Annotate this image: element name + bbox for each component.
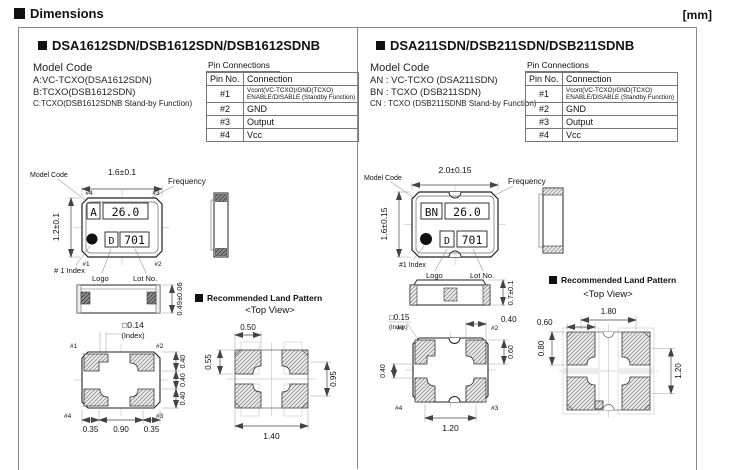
col-connection: Connection	[563, 73, 678, 86]
right-land-pattern-title: Recommended Land Pattern	[549, 275, 676, 285]
left-bottom-view-drawing: □0.14 (Index) #1 #2 #4 #3 0.40 0.40 0.40…	[30, 318, 210, 452]
pin-table-title: Pin Connections	[206, 60, 280, 72]
dim-bottom: 1.20	[442, 423, 459, 433]
col-pin-no: Pin No.	[207, 73, 244, 86]
land-pad-1	[567, 332, 595, 365]
right-panel-title: DSA211SDN/DSB211SDN/DSB211SDNB	[376, 38, 634, 53]
marking-frequency: 26.0	[453, 205, 481, 219]
dim-vertical-pitch: 1.20	[674, 363, 683, 379]
dim-bottom-2: 0.90	[113, 425, 129, 434]
model-code-line: BN : TCXO (DSB211SDN)	[370, 87, 536, 98]
model-code-line: B:TCXO(DSB1612SDN)	[33, 87, 192, 98]
dim-width: 1.6±0.1	[108, 167, 137, 177]
dim-horizontal-pitch: 1.80	[601, 307, 617, 316]
left-top-view-drawing: 1.6±0.1 1.2±0.1 Model Code Frequency #4 …	[28, 160, 263, 284]
land-pad-2	[622, 332, 650, 365]
dim-index-size: □0.15	[389, 313, 410, 322]
marking-logo: D	[444, 236, 450, 247]
dim-width: 2.0±0.15	[438, 165, 471, 175]
callout-model-code: Model Code	[364, 175, 402, 182]
center-terminal	[444, 288, 457, 301]
left-model-code: Model Code A:VC-TCXO(DSA1612SDN) B:TCXO(…	[33, 62, 192, 108]
right-bottom-view-drawing: □0.15 (Index) 0.40 #1 #2 0.40 0.60 #4 #3…	[365, 310, 530, 435]
dim-vertical-pitch: 0.95	[329, 371, 338, 387]
marking-lot-no: 701	[124, 233, 145, 247]
section-marker-icon	[38, 41, 47, 50]
land-pad-3	[622, 377, 650, 410]
pin-label-tr: #2	[156, 343, 164, 350]
side-view	[539, 188, 563, 253]
page-title-text: Dimensions	[30, 6, 104, 21]
terminal	[216, 249, 227, 256]
marking-logo: D	[108, 236, 114, 247]
dim-gap: 0.40	[380, 364, 387, 378]
terminal	[483, 285, 490, 305]
pin-label-bl: #4	[64, 413, 72, 420]
pin-label-tl: #4	[85, 190, 93, 197]
dim-pad-height: 0.80	[537, 340, 546, 356]
table-row: #2GND	[526, 103, 678, 116]
dim-right-1: 0.40	[180, 355, 187, 369]
pin-connections-table: Pin No. Connection #1 Vcont(VC-TCXO)/GND…	[206, 72, 359, 142]
page-title: Dimensions	[14, 6, 104, 21]
terminal	[543, 188, 563, 195]
dim-pad-width: 0.50	[240, 323, 256, 332]
model-code-line: AN : VC-TCXO (DSA211SDN)	[370, 75, 536, 86]
model-code-heading: Model Code	[33, 62, 192, 74]
table-row: #1 Vcont(VC-TCXO)/GND(TCXO)ENABLE/DISABL…	[207, 86, 359, 103]
dim-thickness: 0.49±0.06	[175, 282, 184, 315]
pin-label-tr: #2	[491, 325, 499, 332]
land-pad-4	[567, 377, 595, 410]
left-land-pattern-drawing: 0.50 0.55 0.95 1.40	[195, 318, 360, 450]
index-label: # 1 Index	[54, 266, 85, 275]
right-land-pattern-subtitle: <Top View>	[548, 289, 668, 300]
col-connection: Connection	[244, 73, 359, 86]
col-pin-no: Pin No.	[526, 73, 563, 86]
side-view	[211, 193, 228, 257]
lid	[414, 280, 486, 285]
pin-label-br: #3	[491, 405, 499, 412]
section-marker-icon	[195, 294, 203, 302]
marking-frequency: 26.0	[112, 205, 140, 219]
terminal	[216, 195, 227, 202]
callout-frequency: Frequency	[508, 177, 546, 186]
dim-bottom-3: 0.35	[144, 425, 160, 434]
table-row: #4Vcc	[207, 129, 359, 142]
pin-connections-table: Pin No. Connection #1 Vcont(VC-TCXO)/GND…	[525, 72, 678, 142]
terminal	[147, 292, 156, 304]
right-front-view-drawing: 0.7±0.1	[400, 277, 535, 313]
land-pad-2	[282, 350, 308, 374]
right-top-view-drawing: 2.0±0.15 1.6±0.15 Model Code Frequency B…	[363, 160, 600, 285]
dim-right-2: 0.40	[180, 373, 187, 387]
left-front-view-drawing: 0.49±0.06	[55, 280, 205, 320]
model-code-heading: Model Code	[370, 62, 536, 74]
dim-index-size: □0.14	[122, 320, 144, 330]
land-pad-3	[282, 384, 308, 408]
dim-right-3: 0.40	[180, 392, 187, 406]
marking-model-code: BN	[425, 206, 438, 219]
top-notch	[603, 332, 614, 338]
table-row: #3Output	[207, 116, 359, 129]
dim-overall-width: 1.40	[263, 431, 280, 441]
left-panel-title: DSA1612SDN/DSB1612SDN/DSB1612SDNB	[38, 38, 320, 53]
model-code-line: C:TCXO(DSB1612SDNB Stand-by Function)	[33, 99, 192, 108]
left-land-pattern-subtitle: <Top View>	[200, 305, 340, 316]
dim-pad-width: 0.40	[501, 315, 517, 324]
terminal	[543, 246, 563, 253]
pin-label-tl: #1	[397, 325, 405, 332]
left-pin-table: Pin Connections Pin No. Connection #1 Vc…	[206, 60, 359, 142]
land-pad-1	[235, 350, 261, 374]
dim-height: 1.6±0.15	[379, 207, 389, 240]
dim-pad-height: 0.60	[508, 345, 515, 359]
dim-bottom-1: 0.35	[83, 425, 99, 434]
pin-label-tr: #3	[152, 190, 160, 197]
unit-label: [mm]	[683, 8, 712, 22]
land-pad-index-tab	[595, 401, 603, 409]
pin1-index-dot	[420, 233, 432, 245]
table-row: #4Vcc	[526, 129, 678, 142]
pin-label-tl: #1	[70, 343, 78, 350]
table-row: #2GND	[207, 103, 359, 116]
section-marker-icon	[376, 41, 385, 50]
bottom-notch	[603, 405, 614, 411]
dim-thickness: 0.7±0.1	[506, 281, 515, 306]
dim-pad-height: 0.55	[204, 354, 213, 370]
left-panel-title-text: DSA1612SDN/DSB1612SDN/DSB1612SDNB	[52, 38, 320, 53]
table-row: #1 Vcont(VC-TCXO)/GND(TCXO)ENABLE/DISABL…	[526, 86, 678, 103]
marking-model-code: A	[90, 206, 97, 219]
section-marker-icon	[549, 276, 557, 284]
right-pin-table: Pin Connections Pin No. Connection #1 Vc…	[525, 60, 678, 142]
callout-frequency: Frequency	[168, 177, 206, 186]
model-code-line: A:VC-TCXO(DSA1612SDN)	[33, 75, 192, 86]
land-pad-4	[235, 384, 261, 408]
terminal	[81, 292, 90, 304]
callout-model-code: Model Code	[30, 172, 68, 179]
right-panel-title-text: DSA211SDN/DSB211SDN/DSB211SDNB	[390, 38, 634, 53]
pin-table-title: Pin Connections	[525, 60, 599, 72]
index-label: #1 Index	[399, 262, 426, 269]
pin-label-br: #2	[154, 261, 162, 268]
table-row: #3Output	[526, 116, 678, 129]
marking-lot-no: 701	[462, 233, 483, 247]
pin-label-bl: #4	[395, 405, 403, 412]
dim-height: 1.2±0.1	[51, 213, 61, 242]
model-code-line: CN : TCXO (DSB211SDNB Stand-by Function)	[370, 99, 536, 108]
datasheet-page: { "page": { "title": "Dimensions", "unit…	[0, 0, 730, 469]
terminal	[410, 285, 417, 305]
pin1-index-dot	[87, 234, 98, 245]
right-land-pattern-drawing: 1.80 0.60 0.80 1.20	[535, 302, 713, 432]
left-land-pattern-title: Recommended Land Pattern	[195, 293, 322, 303]
section-marker-icon	[14, 8, 25, 19]
right-model-code: Model Code AN : VC-TCXO (DSA211SDN) BN :…	[370, 62, 536, 108]
dim-pad-width: 0.60	[537, 318, 553, 327]
index-note: (Index)	[121, 331, 145, 340]
